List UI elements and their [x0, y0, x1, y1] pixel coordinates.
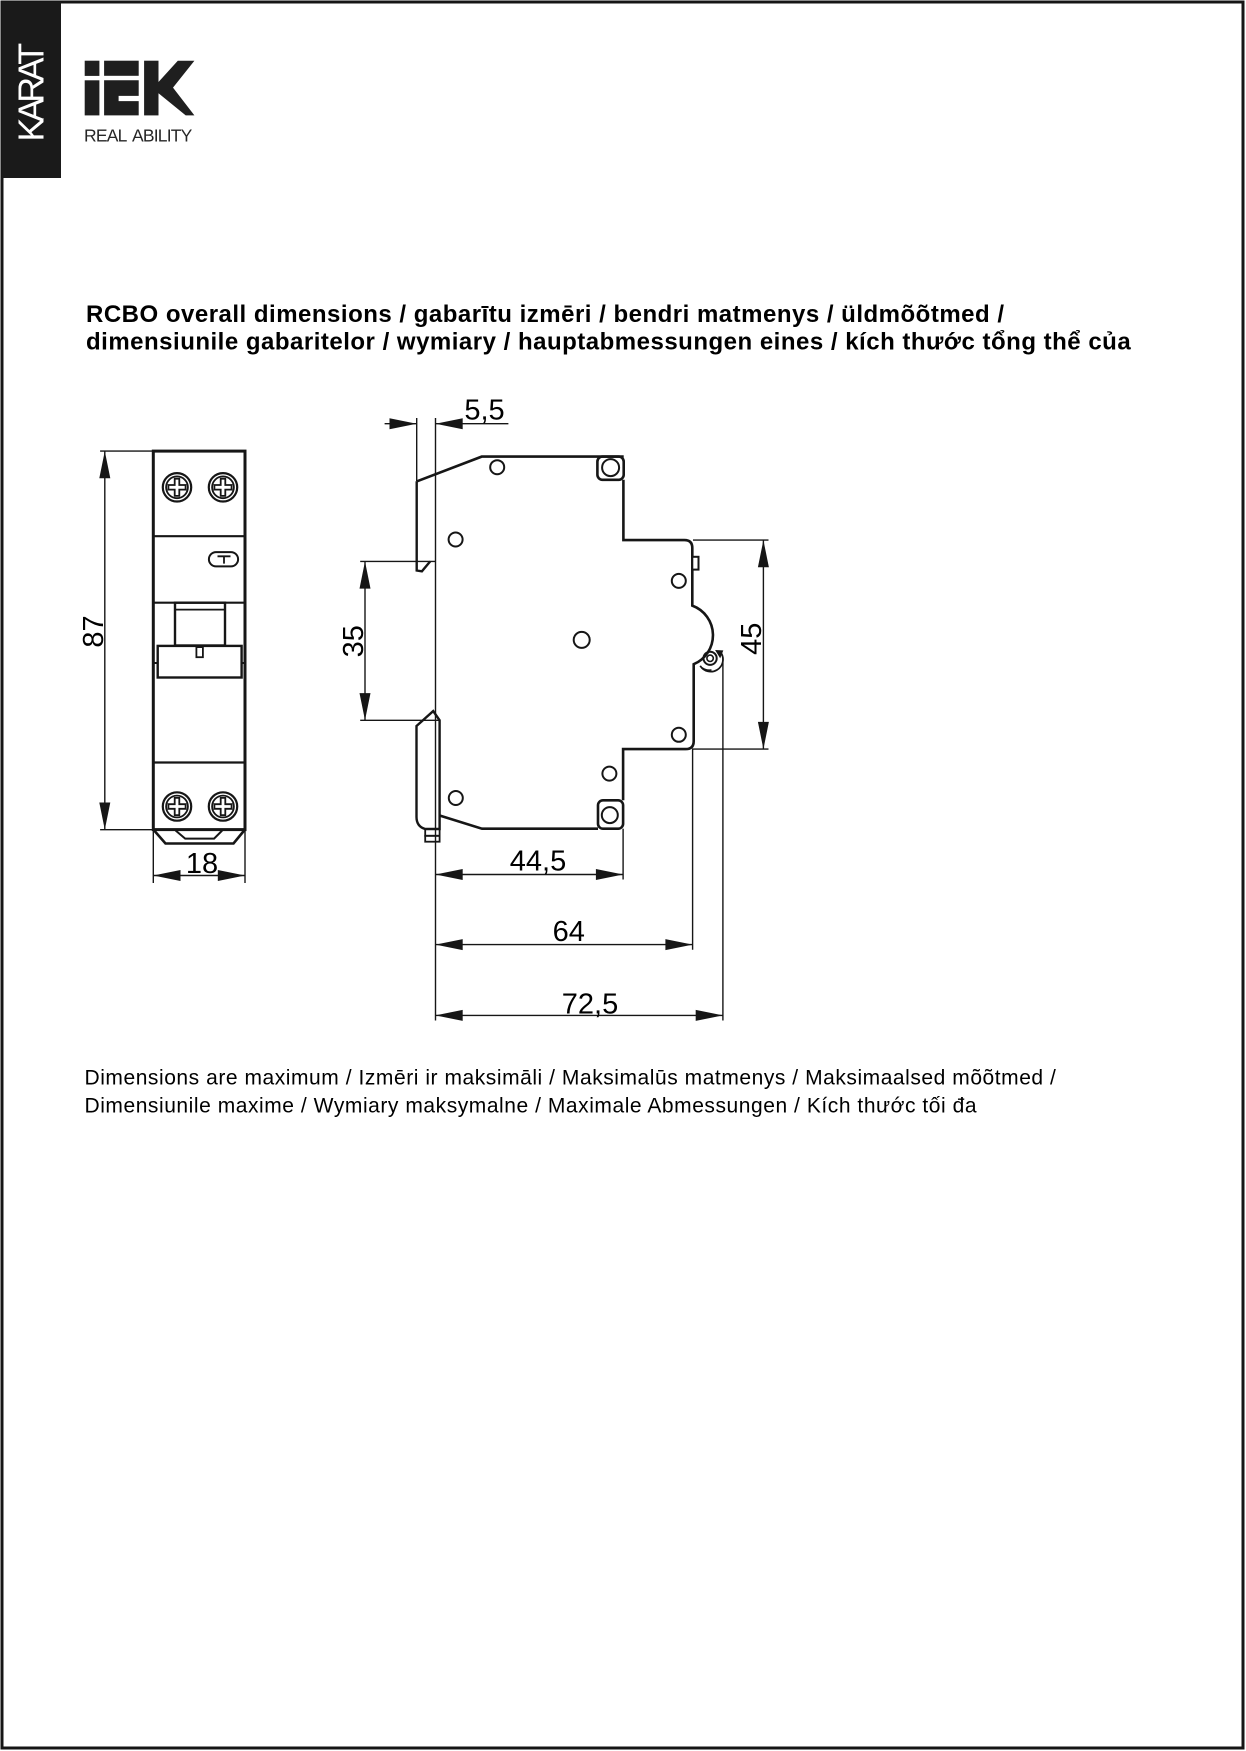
svg-text:5,5: 5,5 — [464, 395, 504, 427]
svg-text:45: 45 — [736, 623, 768, 655]
svg-text:RCBO overall dimensions / gaba: RCBO overall dimensions / gabarītu izmēr… — [86, 301, 1005, 328]
svg-text:44,5: 44,5 — [510, 846, 566, 878]
svg-text:87: 87 — [78, 615, 110, 647]
svg-text:64: 64 — [553, 916, 585, 948]
svg-text:35: 35 — [338, 625, 370, 657]
svg-text:dimensiunile gabaritelor / wym: dimensiunile gabaritelor / wymiary / hau… — [86, 329, 1131, 356]
svg-text:Dimensiunile maxime / Wymiary: Dimensiunile maxime / Wymiary maksymalne… — [85, 1095, 978, 1118]
svg-text:REAL ABILITY: REAL ABILITY — [84, 126, 193, 146]
svg-text:18: 18 — [186, 848, 218, 880]
svg-text:KARAT: KARAT — [11, 43, 52, 142]
svg-text:Dimensions are maximum / Izmēr: Dimensions are maximum / Izmēri ir maksi… — [85, 1067, 1057, 1090]
svg-text:72,5: 72,5 — [562, 989, 618, 1021]
